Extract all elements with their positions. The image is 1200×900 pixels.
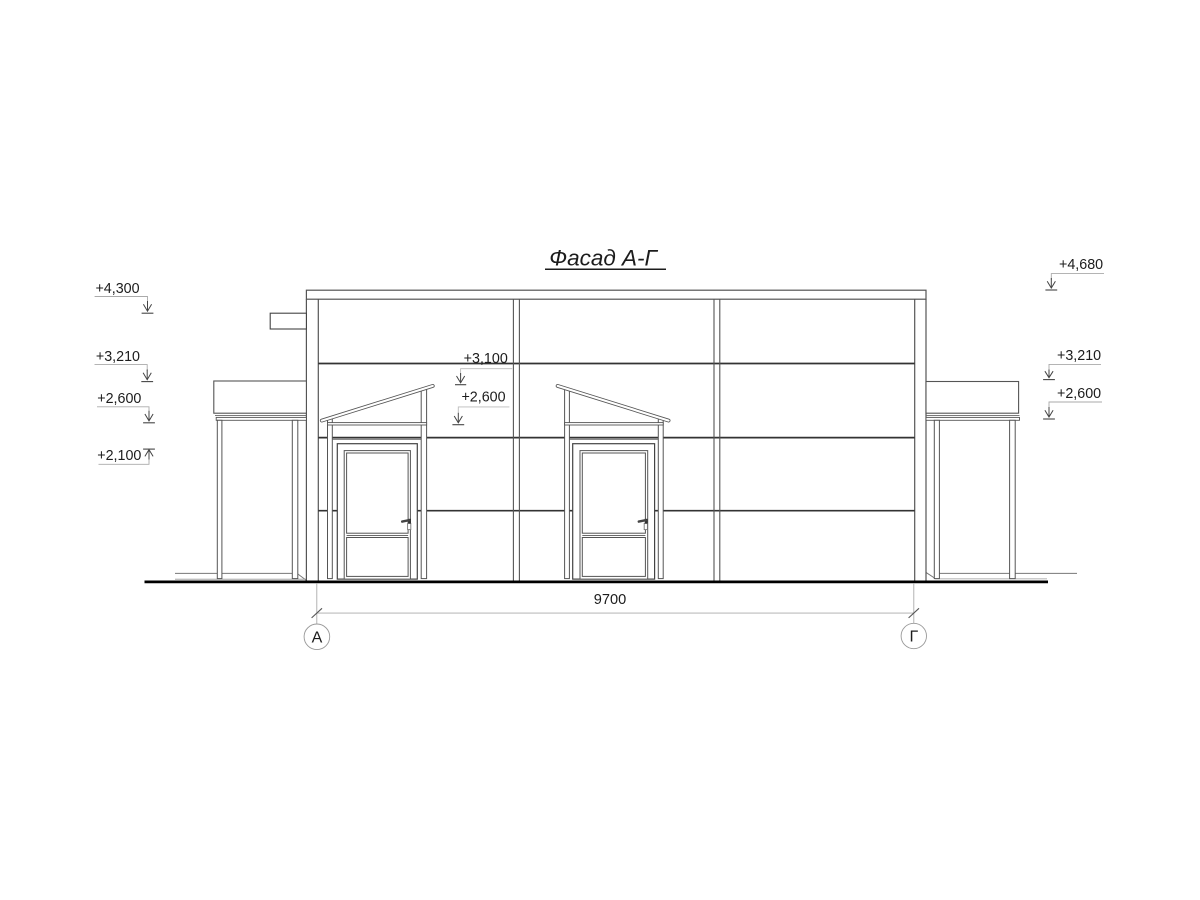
svg-text:+4,300: +4,300 [95,281,139,297]
svg-text:+2,600: +2,600 [1057,386,1101,402]
svg-text:+3,210: +3,210 [96,349,140,365]
svg-text:А: А [312,629,323,646]
svg-text:+2,100: +2,100 [97,448,141,464]
svg-text:+2,600: +2,600 [461,390,505,406]
svg-text:Фасад А-Г: Фасад А-Г [549,246,658,271]
svg-text:Г: Г [909,629,918,646]
svg-text:9700: 9700 [594,592,626,608]
svg-text:+4,680: +4,680 [1059,257,1103,273]
svg-text:+2,600: +2,600 [97,391,141,407]
svg-text:+3,100: +3,100 [464,351,508,367]
svg-text:+3,210: +3,210 [1057,348,1101,364]
